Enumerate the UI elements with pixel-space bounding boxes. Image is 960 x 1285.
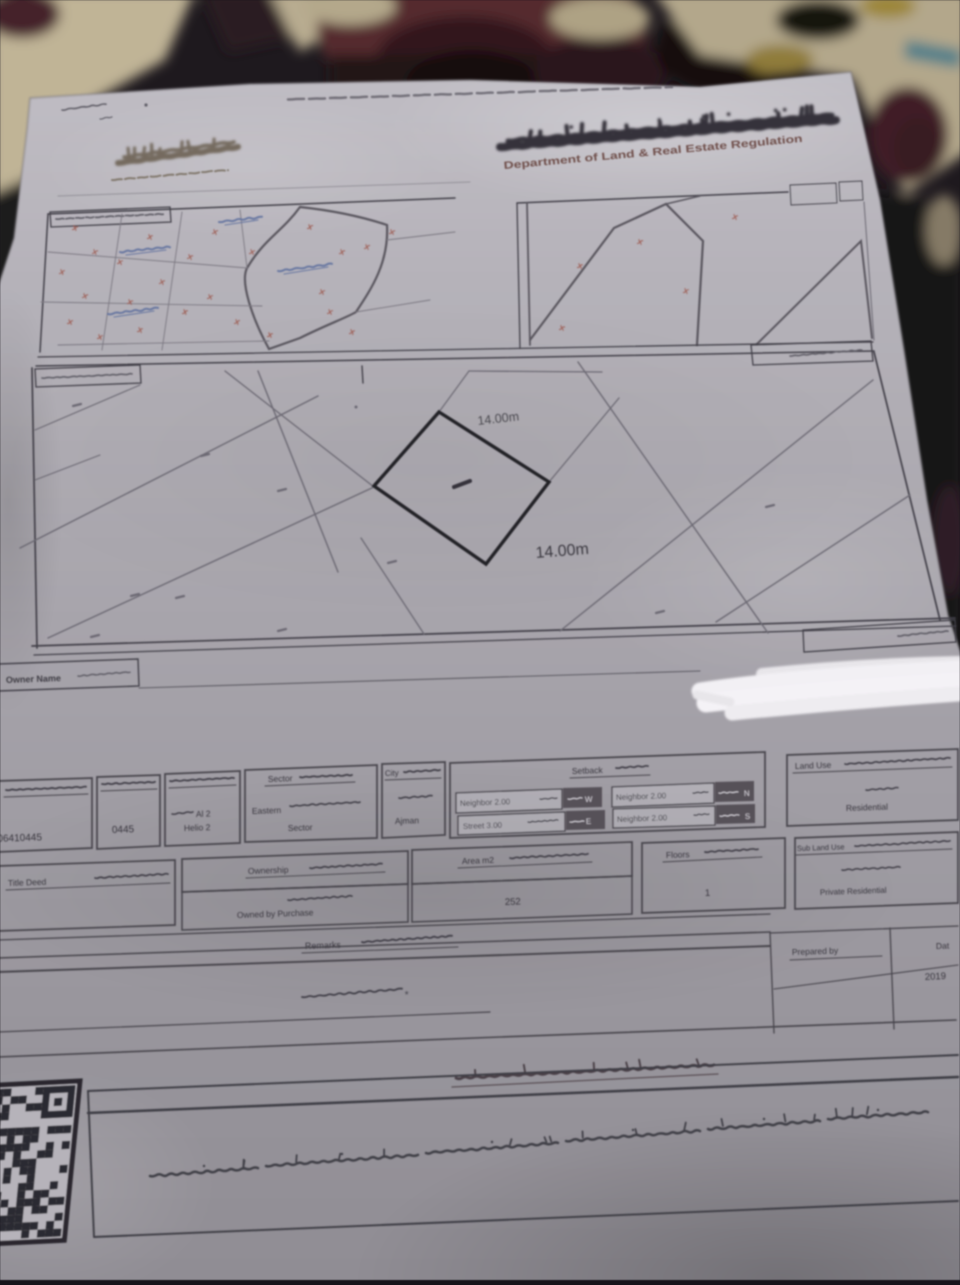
- svg-text:S: S: [745, 812, 751, 821]
- svg-text:252: 252: [505, 896, 521, 908]
- svg-text:Neighbor 2.00: Neighbor 2.00: [460, 797, 511, 808]
- svg-text:Ownership: Ownership: [248, 865, 289, 876]
- svg-text:Neighbor 2.00: Neighbor 2.00: [616, 791, 667, 802]
- svg-text:Sector: Sector: [268, 773, 293, 784]
- svg-text:106410445: 106410445: [0, 832, 43, 845]
- svg-text:1: 1: [705, 888, 711, 899]
- svg-text:Sub Land Use: Sub Land Use: [797, 842, 845, 853]
- svg-text:2019: 2019: [925, 971, 947, 983]
- svg-text:Dat: Dat: [936, 941, 950, 951]
- svg-text:Land Use: Land Use: [795, 760, 832, 771]
- svg-text:E: E: [586, 817, 592, 826]
- svg-text:Sector: Sector: [288, 822, 313, 833]
- svg-text:Ajman: Ajman: [395, 815, 420, 826]
- svg-text:Owner Name: Owner Name: [6, 673, 61, 685]
- svg-text:Prepared by: Prepared by: [792, 945, 839, 957]
- svg-text:0445: 0445: [112, 824, 135, 836]
- svg-text:W: W: [585, 795, 593, 804]
- svg-text:Street 3.00: Street 3.00: [463, 821, 503, 831]
- svg-text:Eastern: Eastern: [252, 805, 282, 816]
- svg-text:Neighbor 2.00: Neighbor 2.00: [617, 813, 668, 824]
- svg-text:City: City: [385, 769, 399, 778]
- svg-text:N: N: [744, 789, 750, 798]
- svg-text:Title Deed: Title Deed: [8, 877, 47, 888]
- svg-text:Setback: Setback: [572, 765, 604, 776]
- svg-text:Floors: Floors: [666, 849, 690, 860]
- svg-text:*: *: [405, 990, 410, 1001]
- svg-text:Helio 2: Helio 2: [184, 822, 211, 833]
- svg-text:Area m2: Area m2: [462, 855, 495, 866]
- svg-text:Residential: Residential: [846, 802, 888, 813]
- svg-text:Remarks: Remarks: [305, 940, 342, 951]
- svg-text:Al 2: Al 2: [196, 808, 211, 819]
